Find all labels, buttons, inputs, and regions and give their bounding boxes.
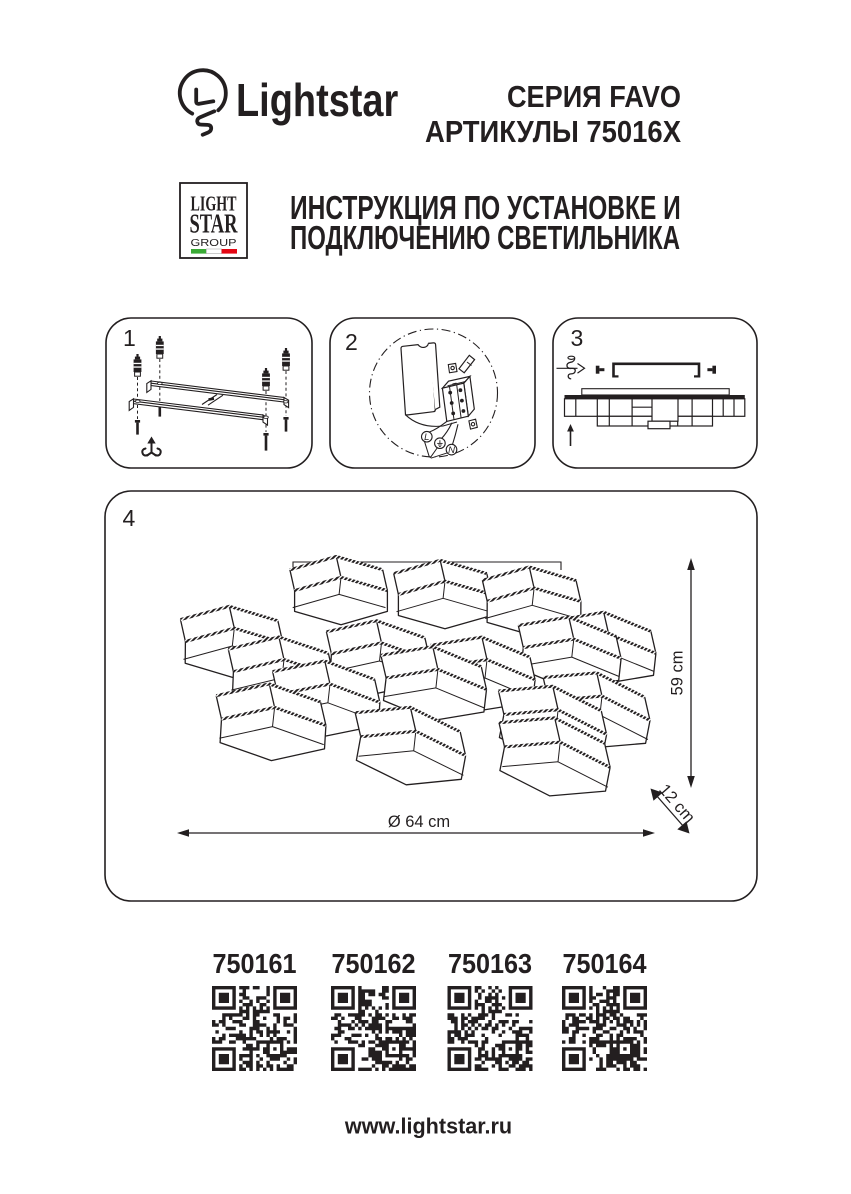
svg-text:1: 1 — [123, 325, 136, 351]
svg-text:N: N — [448, 445, 455, 456]
svg-text:750164: 750164 — [562, 948, 646, 980]
svg-text:Ø 64 cm: Ø 64 cm — [388, 813, 450, 831]
svg-text:750161: 750161 — [212, 948, 296, 980]
svg-text:STAR: STAR — [190, 209, 238, 239]
svg-text:Lightstar: Lightstar — [236, 75, 398, 126]
svg-text:2: 2 — [345, 329, 358, 355]
svg-text:4: 4 — [123, 505, 136, 531]
svg-text:750162: 750162 — [331, 948, 415, 980]
svg-text:GROUP: GROUP — [191, 237, 237, 249]
svg-text:АРТИКУЛЫ 75016X: АРТИКУЛЫ 75016X — [425, 116, 681, 150]
svg-text:3: 3 — [571, 325, 584, 351]
svg-text:750163: 750163 — [448, 948, 532, 980]
svg-text:ПОДКЛЮЧЕНИЮ СВЕТИЛЬНИКА: ПОДКЛЮЧЕНИЮ СВЕТИЛЬНИКА — [290, 220, 680, 257]
svg-text:59 cm: 59 cm — [669, 651, 687, 696]
svg-text:www.lightstar.ru: www.lightstar.ru — [344, 1113, 512, 1139]
svg-text:СЕРИЯ FAVO: СЕРИЯ FAVO — [507, 80, 681, 114]
